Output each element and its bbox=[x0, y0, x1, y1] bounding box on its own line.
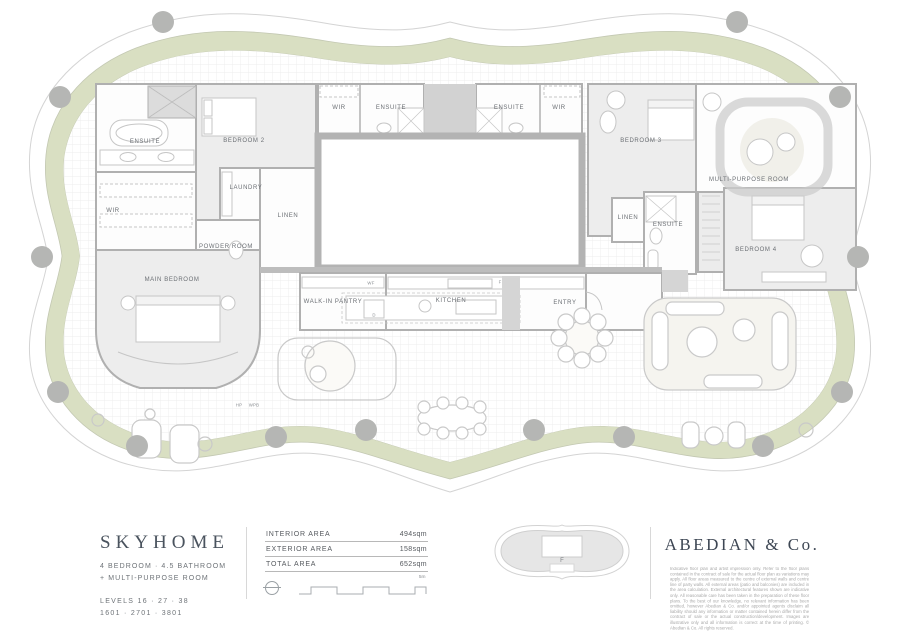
brand-name: ABEDIAN & Co. bbox=[662, 535, 822, 555]
area-row: INTERIOR AREA 494sqm bbox=[265, 527, 428, 542]
plan-name-block: SKYHOME 4 BEDROOM · 4.5 BATHROOM + MULTI… bbox=[100, 532, 250, 617]
plan-units: 1601 · 2701 · 3801 bbox=[100, 610, 250, 617]
scale-block: 5m bbox=[265, 577, 428, 599]
key-plan-label: F bbox=[560, 558, 564, 564]
scale-label: 5m bbox=[418, 575, 425, 580]
key-plan: F bbox=[487, 520, 637, 584]
north-indicator-icon bbox=[265, 581, 279, 595]
area-row: TOTAL AREA 652sqm bbox=[265, 557, 428, 572]
area-label: TOTAL AREA bbox=[266, 561, 316, 568]
void-area bbox=[318, 136, 582, 268]
plan-levels: LEVELS 16 · 27 · 38 bbox=[100, 598, 250, 605]
floor-plan-drawing bbox=[0, 0, 900, 505]
key-plan-drawing bbox=[487, 520, 637, 584]
area-value: 652sqm bbox=[400, 561, 427, 568]
divider bbox=[650, 527, 651, 599]
area-label: INTERIOR AREA bbox=[266, 531, 330, 538]
hall-core bbox=[424, 84, 476, 138]
scale-bar bbox=[299, 583, 427, 597]
plan-subtitle-2: + MULTI-PURPOSE ROOM bbox=[100, 575, 250, 582]
plan-subtitle-1: 4 BEDROOM · 4.5 BATHROOM bbox=[100, 563, 250, 570]
area-table: INTERIOR AREA 494sqm EXTERIOR AREA 158sq… bbox=[265, 527, 428, 572]
floorplan-page: { "plan": { "labels": [ {"text":"ENSUITE… bbox=[0, 0, 900, 600]
floor-plan: ENSUITEBEDROOM 2LAUNDRYWIRLINENPOWDER RO… bbox=[0, 0, 900, 505]
area-row: EXTERIOR AREA 158sqm bbox=[265, 542, 428, 557]
brand-block: ABEDIAN & Co. bbox=[662, 535, 822, 555]
divider bbox=[246, 527, 247, 599]
area-value: 158sqm bbox=[400, 546, 427, 553]
disclaimer-text: Indicative floor plan and artist impress… bbox=[670, 567, 809, 632]
room-linen2 bbox=[612, 198, 644, 242]
area-value: 494sqm bbox=[400, 531, 427, 538]
room-linen-corridor bbox=[260, 168, 316, 272]
plan-name: SKYHOME bbox=[100, 532, 250, 554]
title-block: SKYHOME 4 BEDROOM · 4.5 BATHROOM + MULTI… bbox=[0, 505, 900, 600]
area-label: EXTERIOR AREA bbox=[266, 546, 333, 553]
